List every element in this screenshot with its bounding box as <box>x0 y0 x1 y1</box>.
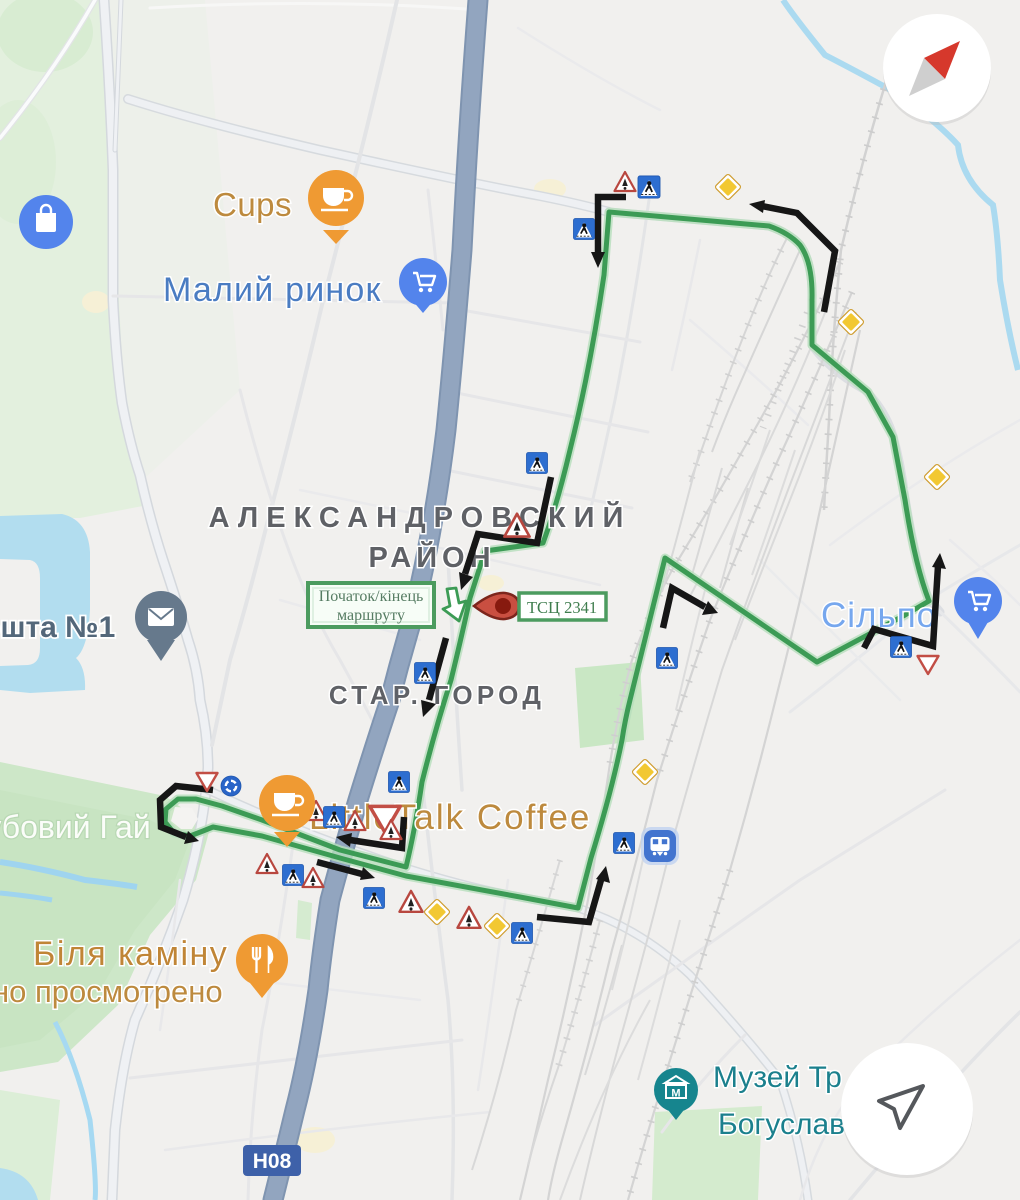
svg-text:маршруту: маршруту <box>337 607 405 624</box>
svg-text:Н08: Н08 <box>253 1150 292 1173</box>
svg-text:СТАР. ГОРОД: СТАР. ГОРОД <box>329 680 545 710</box>
svg-text:пошта №1: пошта №1 <box>0 611 115 644</box>
svg-text:но просмотрено: но просмотрено <box>0 974 223 1009</box>
svg-text:Малий ринок: Малий ринок <box>163 271 382 309</box>
svg-text:Музей Тр: Музей Тр <box>713 1061 842 1094</box>
svg-text:Cups: Cups <box>213 186 292 223</box>
svg-text:Дубовий Гай: Дубовий Гай <box>0 809 151 845</box>
svg-text:M: M <box>671 1088 680 1100</box>
svg-text:Богуслав: Богуслав <box>718 1108 845 1141</box>
svg-text:Біля каміну: Біля каміну <box>33 935 228 973</box>
svg-text:ТСЦ 2341: ТСЦ 2341 <box>527 598 597 617</box>
svg-text:Початок/кінець: Початок/кінець <box>319 588 424 605</box>
svg-text:АЛЕКСАНДРОВСКИЙ: АЛЕКСАНДРОВСКИЙ <box>209 500 632 534</box>
